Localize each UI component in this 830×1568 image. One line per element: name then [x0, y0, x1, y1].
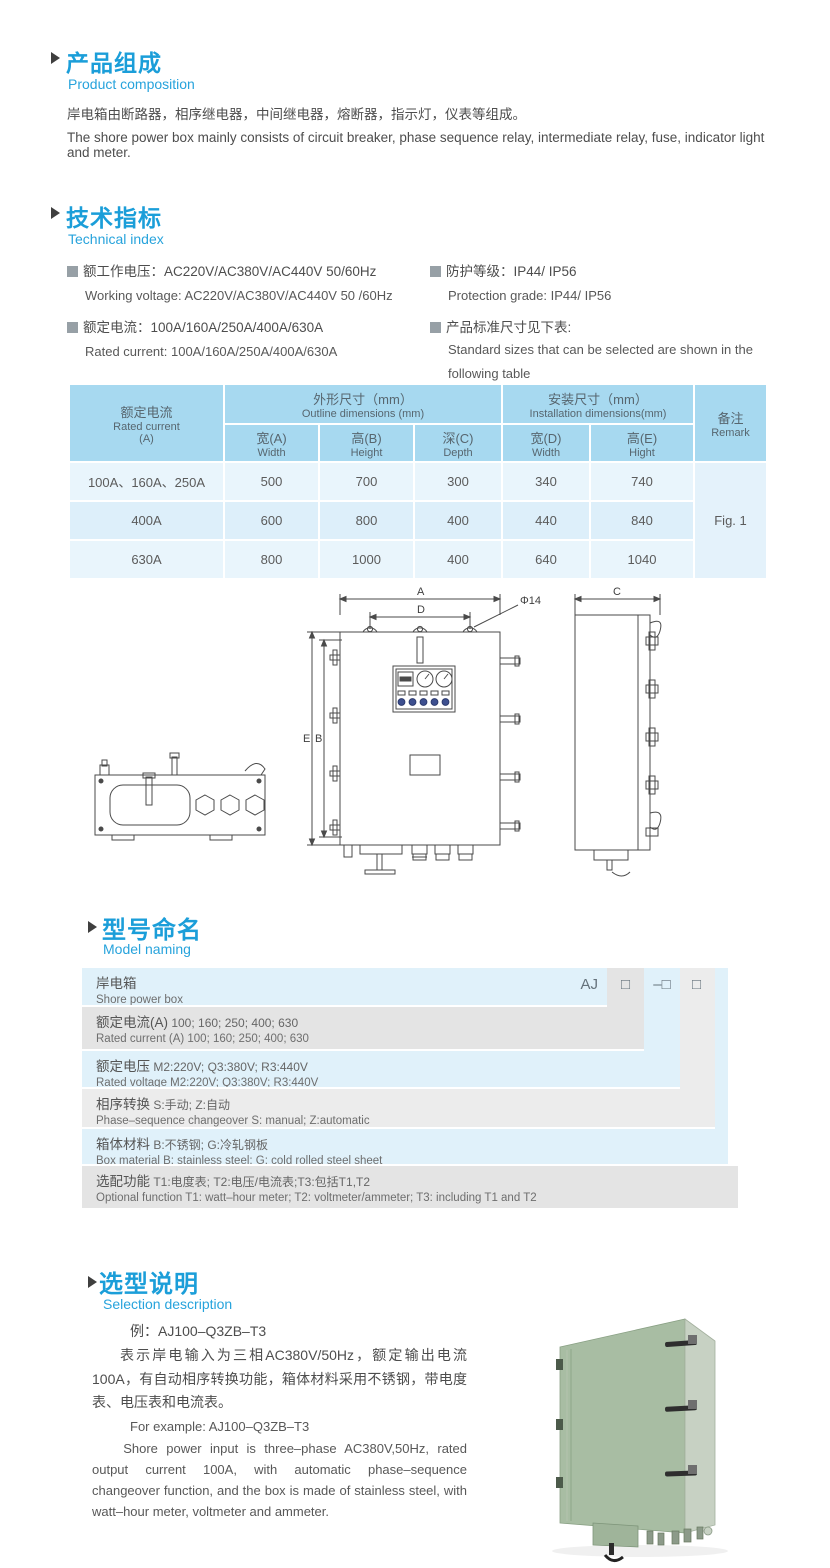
- dim-label-a: A: [417, 586, 425, 598]
- composition-text-en: The shore power box mainly consists of c…: [67, 130, 787, 160]
- dim-label-b: B: [315, 733, 322, 745]
- dimensions-table: 额定电流 Rated current (A) 外形尺寸（mm） Outline …: [68, 383, 768, 580]
- model-row-optional-function: 选配功能 T1:电度表; T2:电压/电流表;T3:包括T1,T2 Option…: [82, 1166, 738, 1208]
- square-bullet-icon: [67, 266, 78, 277]
- cell: 600: [225, 502, 318, 539]
- section-title-model-naming: 型号命名: [102, 910, 202, 945]
- selection-example-cn: 例：AJ100–Q3ZB–T3: [130, 1320, 266, 1344]
- spec-working-voltage-en: Working voltage: AC220V/AC380V/AC440V 50…: [85, 288, 393, 303]
- spec-standard-sizes-en-line2: following table: [448, 366, 530, 381]
- model-row-rated-current: 额定电流(A) 100; 160; 250; 400; 630 Rated cu…: [82, 1007, 644, 1049]
- section-subtitle-technical-index: Technical index: [68, 231, 164, 247]
- spec-working-voltage-cn: 额工作电压：AC220V/AC380V/AC440V 50/60Hz: [67, 260, 376, 280]
- spec-rated-current-en: Rated current: 100A/160A/250A/400A/630A: [85, 344, 337, 359]
- square-bullet-icon: [67, 322, 78, 333]
- cell: 400A: [70, 502, 223, 539]
- cell: 800: [225, 541, 318, 578]
- model-row-rated-voltage: 额定电压 M2:220V; Q3:380V; R3:440V Rated vol…: [82, 1051, 680, 1087]
- model-code-box-2: –□: [644, 976, 680, 993]
- section-subtitle-selection-description: Selection description: [103, 1296, 232, 1312]
- model-row-box-material: 箱体材料 B:不锈钢; G:冷轧钢板 Box material B: stain…: [82, 1129, 728, 1164]
- technical-drawing: A D Φ14 E B C: [60, 585, 770, 900]
- cell: 640: [503, 541, 589, 578]
- col-header-depth-c: 深(C)Depth: [415, 425, 501, 461]
- col-header-installation-dimensions: 安装尺寸（mm） Installation dimensions(mm): [503, 385, 693, 423]
- col-header-rated-current: 额定电流 Rated current (A): [70, 385, 223, 461]
- catalog-page: 产品组成 Product composition 岸电箱由断路器，相序继电器，中…: [0, 0, 830, 1568]
- square-bullet-icon: [430, 322, 441, 333]
- spec-protection-grade-en: Protection grade: IP44/ IP56: [448, 288, 611, 303]
- cell: 100A、160A、250A: [70, 463, 223, 500]
- section-title-product-composition: 产品组成: [66, 44, 162, 78]
- dim-label-c: C: [613, 586, 621, 598]
- col-header-height-b: 高(B)Height: [320, 425, 413, 461]
- cell: 840: [591, 502, 693, 539]
- col-header-width-d: 宽(D)Width: [503, 425, 589, 461]
- cell: 500: [225, 463, 318, 500]
- model-code-prefix: AJ: [552, 976, 598, 993]
- cell: 300: [415, 463, 501, 500]
- model-code-box-3: □: [678, 976, 715, 993]
- section-title-selection-description: 选型说明: [99, 1264, 199, 1299]
- cell: 630A: [70, 541, 223, 578]
- model-row-shore-power-box: 岸电箱 Shore power box: [82, 968, 607, 1005]
- model-code-box-1: □: [607, 976, 644, 993]
- dim-label-e: E: [303, 733, 310, 745]
- product-photo: [545, 1285, 830, 1568]
- section-subtitle-product-composition: Product composition: [68, 76, 195, 92]
- section-arrow-icon: [51, 207, 60, 219]
- cell: 340: [503, 463, 589, 500]
- remark-value: Fig. 1: [695, 463, 766, 578]
- spec-rated-current-cn: 额定电流：100A/160A/250A/400A/630A: [67, 316, 323, 336]
- cell: 700: [320, 463, 413, 500]
- dim-label-dia14: Φ14: [520, 595, 541, 607]
- composition-text-cn: 岸电箱由断路器，相序继电器，中间继电器，熔断器，指示灯，仪表等组成。: [67, 103, 787, 123]
- model-naming-diagram: 岸电箱 Shore power box 额定电流(A) 100; 160; 25…: [82, 968, 738, 1208]
- cell: 400: [415, 541, 501, 578]
- section-arrow-icon: [88, 1276, 97, 1288]
- section-title-technical-index: 技术指标: [66, 199, 162, 233]
- selection-example-en: For example: AJ100–Q3ZB–T3: [130, 1416, 309, 1437]
- col-header-hight-e: 高(E)Hight: [591, 425, 693, 461]
- square-bullet-icon: [430, 266, 441, 277]
- table-row: 630A 800 1000 400 640 1040: [70, 541, 766, 578]
- col-header-width-a: 宽(A)Width: [225, 425, 318, 461]
- spec-standard-sizes-en-line1: Standard sizes that can be selected are …: [448, 342, 753, 357]
- section-arrow-icon: [51, 52, 60, 64]
- table-row: 400A 600 800 400 440 840: [70, 502, 766, 539]
- spec-protection-grade-cn: 防护等级：IP44/ IP56: [430, 260, 577, 280]
- section-subtitle-model-naming: Model naming: [103, 941, 191, 957]
- cell: 1040: [591, 541, 693, 578]
- spec-standard-sizes-cn: 产品标准尺寸见下表:: [430, 316, 571, 336]
- selection-paragraph-en: Shore power input is three–phase AC380V,…: [92, 1438, 467, 1522]
- cell: 400: [415, 502, 501, 539]
- cell: 740: [591, 463, 693, 500]
- selection-paragraph-cn: 表示岸电输入为三相AC380V/50Hz，额定输出电流100A，有自动相序转换功…: [92, 1344, 467, 1415]
- cell: 440: [503, 502, 589, 539]
- section-arrow-icon: [88, 921, 97, 933]
- col-header-remark: 备注 Remark: [695, 385, 766, 461]
- cell: 1000: [320, 541, 413, 578]
- cell: 800: [320, 502, 413, 539]
- col-header-outline-dimensions: 外形尺寸（mm） Outline dimensions (mm): [225, 385, 501, 423]
- dim-label-d: D: [417, 604, 425, 616]
- table-row: 100A、160A、250A 500 700 300 340 740 Fig. …: [70, 463, 766, 500]
- model-row-phase-sequence: 相序转换 S:手动; Z:自动 Phase–sequence changeove…: [82, 1089, 715, 1127]
